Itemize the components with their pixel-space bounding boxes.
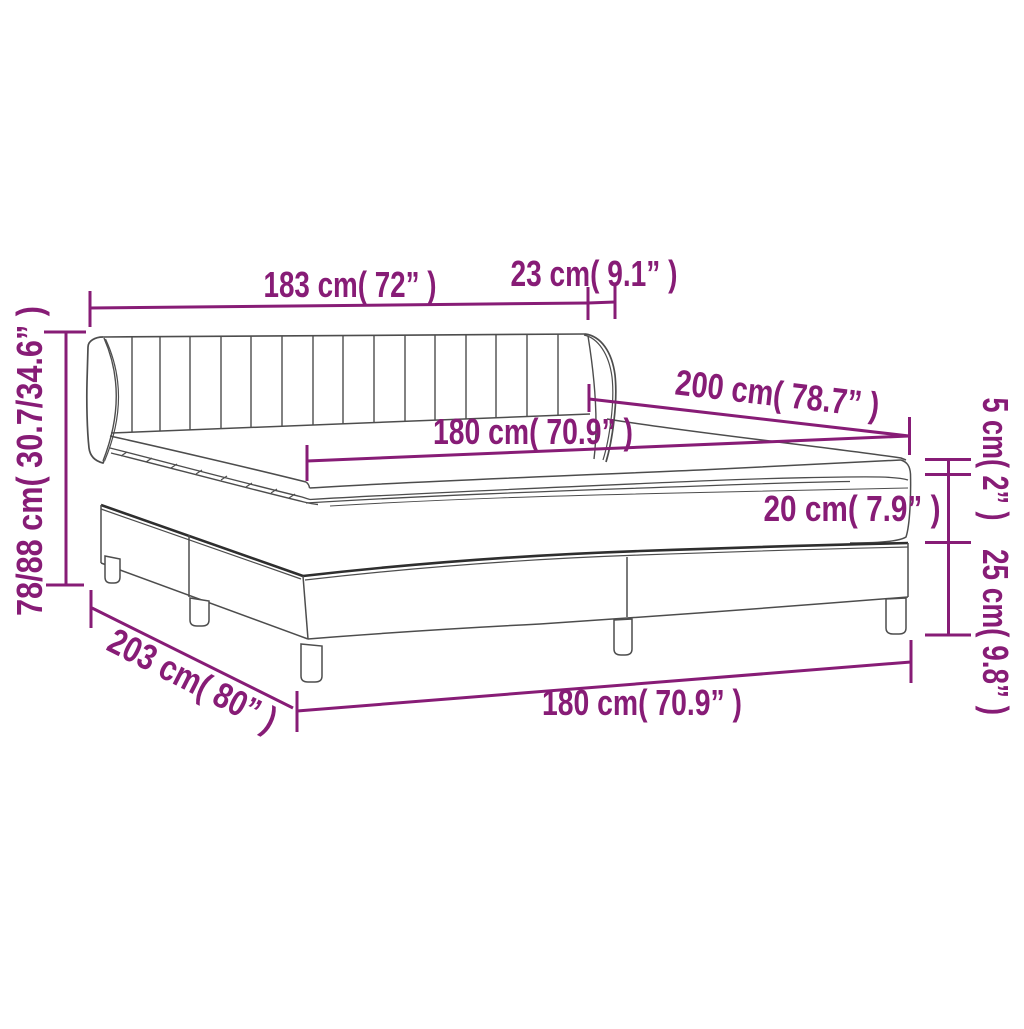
svg-text:5 cm( 2” ): 5 cm( 2” ) bbox=[975, 398, 1016, 521]
svg-text:25 cm( 9.8” ): 25 cm( 9.8” ) bbox=[975, 549, 1016, 715]
svg-text:180 cm( 70.9” ): 180 cm( 70.9” ) bbox=[542, 682, 742, 723]
svg-text:183 cm( 72” ): 183 cm( 72” ) bbox=[264, 264, 437, 305]
svg-text:78/88 cm( 30.7/34.6” ): 78/88 cm( 30.7/34.6” ) bbox=[9, 306, 50, 616]
svg-text:180 cm( 70.9” ): 180 cm( 70.9” ) bbox=[433, 411, 633, 452]
svg-text:23 cm( 9.1” ): 23 cm( 9.1” ) bbox=[511, 253, 678, 294]
svg-text:20 cm( 7.9” ): 20 cm( 7.9” ) bbox=[764, 488, 941, 529]
